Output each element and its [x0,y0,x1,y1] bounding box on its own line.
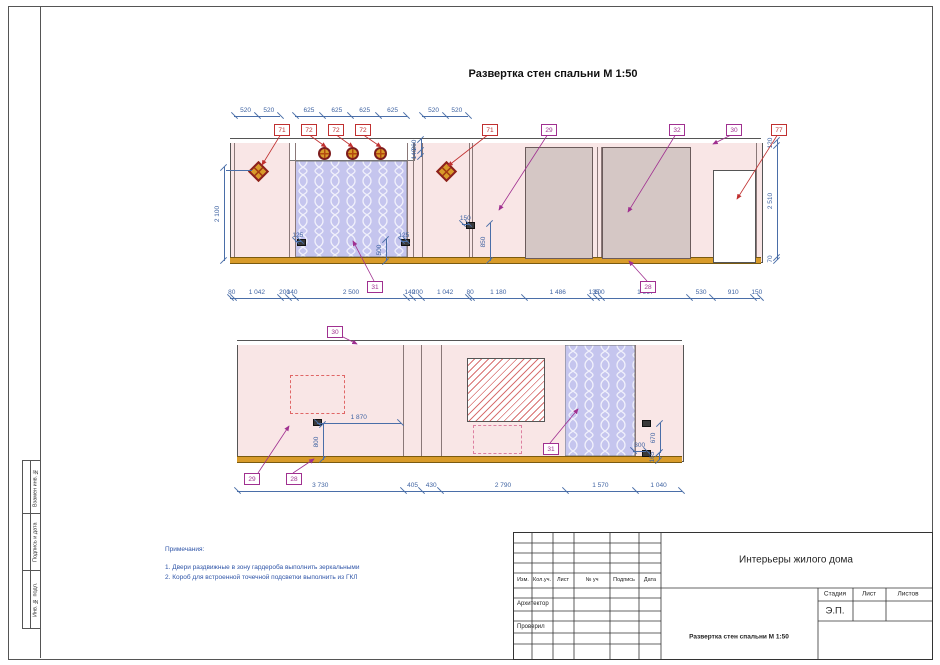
callout-30: 30 [726,124,742,136]
dimension-segment: 1 040 [635,479,681,492]
note-item: 1. Двери раздвижные в зону гардероба вып… [165,563,360,573]
dimension-segment: 405 [404,479,422,492]
dimension-label: 625 [387,108,398,115]
callout-28: 28 [640,281,656,293]
wall-joint [413,143,414,257]
dimension-label: 1 040 [650,483,666,490]
elev2-baseboard [237,456,682,463]
dimension-segment: 530 [689,286,713,299]
tb-col-izm: Изм. [517,577,529,583]
spotlight-icon [374,147,387,160]
callout-32: 32 [669,124,685,136]
dimension-label: 1 570 [592,483,608,490]
elev1-door-opening [713,170,756,263]
dimension-label: 800 [314,436,321,447]
dimension-segment: 125 [295,229,301,242]
dimension-segment: 520 [234,104,257,117]
dimension-label: 125 [398,233,409,240]
dim-socket2: 125 [401,229,407,241]
callout-77: 77 [771,124,787,136]
dimension-segment: 150 [462,212,469,225]
dimension-label: 530 [696,290,707,297]
sidebar-label: Взамен инв. № [31,461,40,514]
tb-col-nuch: № уч [585,577,598,583]
dimension-segment: 500 [374,239,387,261]
wall-joint [422,143,423,257]
dimension-segment: 625 [351,104,379,117]
dim-chain-niche: 625625625625 [295,104,407,116]
tb-architect-label: Архитектор [517,601,549,607]
callout-72: 72 [301,124,317,136]
dimension-segment: 430 [422,479,441,492]
page-title: Развертка стен спальни М 1:50 [469,68,638,80]
dim-niche-vertical: 260140 [409,139,421,157]
dim-sconce-height: 2 100 [212,167,224,261]
dimension-segment: 3 730 [237,479,404,492]
dimension-label: 520 [451,108,462,115]
dimension-segment: 2 790 [441,479,566,492]
tb-sheets-label: Листов [897,591,918,598]
callout-29: 29 [541,124,557,136]
wall-joint [289,143,290,257]
dimension-label: 2 510 [768,193,775,209]
elev1-wallpaper [295,161,407,257]
dimension-segment: 625 [295,104,323,117]
dimension-label: 300 [634,443,645,450]
wall-joint [601,147,602,257]
dimension-segment: 300 [633,439,646,452]
wall-joint [472,143,473,257]
dimension-segment: 150 [754,286,761,299]
dimension-label: 1 042 [249,290,265,297]
dim-chain-bottom2: 3 7304054302 7901 5701 040 [237,479,682,491]
dim-tv-offset: 1 870 [317,411,401,423]
dimension-label: 165 [650,451,657,462]
sidebar-cell: Подпись и дата [22,513,41,572]
note-item: 2. Короб для встроенной точечной подсвет… [165,573,360,583]
dimension-segment: 165 [647,453,660,460]
dimension-label: 520 [240,108,251,115]
dimension-segment: 70 [765,257,778,260]
spotlight-icon [346,147,359,160]
dimension-label: 2 500 [343,290,359,297]
callout-29: 29 [244,473,260,485]
dimension-segment: 1 042 [422,286,469,299]
sidebar-cell: Взамен инв. № [22,460,41,515]
callout-71: 71 [482,124,498,136]
tb-stage-label: Стадия [824,591,846,598]
tb-sheet-label: Лист [862,591,876,598]
dimension-segment: 850 [478,223,491,261]
wall-joint [441,345,442,456]
tb-col-data: Дата [644,577,656,583]
notes: Примечания: 1. Двери раздвижные в зону г… [165,545,360,582]
tb-drawing-title: Развертка стен спальни М 1:50 [689,634,789,641]
dimension-segment: 910 [713,286,754,299]
elev1-wardrobe-door-right [602,147,691,259]
dimension-segment: 125 [401,229,407,242]
dimension-label: 1 042 [437,290,453,297]
dimension-segment: 1 570 [565,479,635,492]
callout-31: 31 [367,281,383,293]
sidebar-label: Подпись и дата [31,514,40,571]
wall-joint [421,345,422,456]
dimension-label: 150 [460,216,471,223]
dim-socket1: 125 [295,229,301,241]
elev2-wallpaper [565,345,635,456]
dimension-label: 910 [728,290,739,297]
dimension-segment: 2 500 [295,286,407,299]
dimension-label: 625 [359,108,370,115]
dimension-segment: 625 [379,104,407,117]
dimension-segment: 520 [422,104,445,117]
dimension-label: 625 [331,108,342,115]
dimension-label: 2 790 [495,483,511,490]
elev1-wardrobe-door-left [525,147,593,259]
dimension-label: 150 [751,290,762,297]
dim-chain-right: 1202 51070 [765,140,777,260]
callout-28: 28 [286,473,302,485]
dimension-segment: 1 486 [525,286,591,299]
callout-31: 31 [543,443,559,455]
sidebar-label: Инв. № подл. [31,571,40,628]
dim-socket3-height: 850 [478,223,490,261]
tb-project-title: Интерьеры жилого дома [739,555,853,566]
tb-checked-label: Проверил [517,624,545,630]
title-block: Изм. Кол.уч. Лист № уч Подпись Дата Архи… [513,532,933,660]
dimension-label: 520 [263,108,274,115]
dimension-segment: 625 [323,104,351,117]
spotlight-icon [318,147,331,160]
drawing-sheet: { "page": { "title": "Развертка стен спа… [0,0,940,665]
dim-socket2-height: 500 [374,239,386,261]
dimension-label: 625 [304,108,315,115]
wall-joint [403,345,404,456]
dim-tv-socket-height: 800 [311,424,323,460]
sidebar-cell: Инв. № подл. [22,570,41,629]
dimension-segment: 1 042 [234,286,281,299]
dim-socket-offset: 300 [633,439,646,451]
dimension-segment: 2 100 [212,167,225,261]
dimension-label: 3 730 [312,483,328,490]
dim-socket-spacing: 670 [648,423,660,453]
callout-72: 72 [355,124,371,136]
extension-line [226,170,252,171]
tb-stage-value: Э.П. [826,606,845,617]
dimension-segment: 800 [311,424,324,460]
dimension-segment: 1 870 [317,411,401,424]
dimension-label: 70 [768,255,775,262]
callout-30: 30 [327,326,343,338]
dimension-label: 2 100 [215,206,222,222]
dimension-label: 125 [292,233,303,240]
wall-joint [469,143,470,257]
dimension-label: 850 [481,237,488,248]
dimension-label: 430 [426,483,437,490]
dim-chain-top-left: 520520 [234,104,280,116]
tb-col-podpis: Подпись [613,577,635,583]
console-dashed [473,425,522,454]
dimension-label: 1 870 [351,415,367,422]
wall-joint [756,143,757,257]
callout-71: 71 [274,124,290,136]
wall-joint [597,147,598,257]
dimension-segment: 1 180 [472,286,525,299]
dimension-label: 140 [412,148,419,159]
tb-col-koluch: Кол.уч. [533,577,551,583]
mirror-hatched [467,358,545,422]
dimension-segment: 2 510 [765,145,778,257]
dimension-label: 1 486 [550,290,566,297]
dim-chain-top-mid: 520520 [422,104,468,116]
dim-socket-floor: 165 [647,453,659,460]
notes-title: Примечания: [165,545,360,555]
dimension-label: 1 180 [490,290,506,297]
dimension-label: 520 [428,108,439,115]
dimension-label: 405 [407,483,418,490]
callout-72: 72 [328,124,344,136]
tb-col-list: Лист [557,577,569,583]
dimension-segment: 140 [409,151,422,157]
dim-socket3: 150 [462,212,469,224]
tv-zone-dashed [290,375,345,414]
dimension-label: 670 [651,433,658,444]
dim-chain-bottom: 801 0422001402 5001402001 042801 1801 48… [230,286,760,298]
dimension-segment: 670 [648,423,661,453]
wall-joint [234,143,235,257]
dimension-segment: 520 [445,104,468,117]
dimension-segment: 520 [257,104,280,117]
dimension-label: 500 [377,245,384,256]
